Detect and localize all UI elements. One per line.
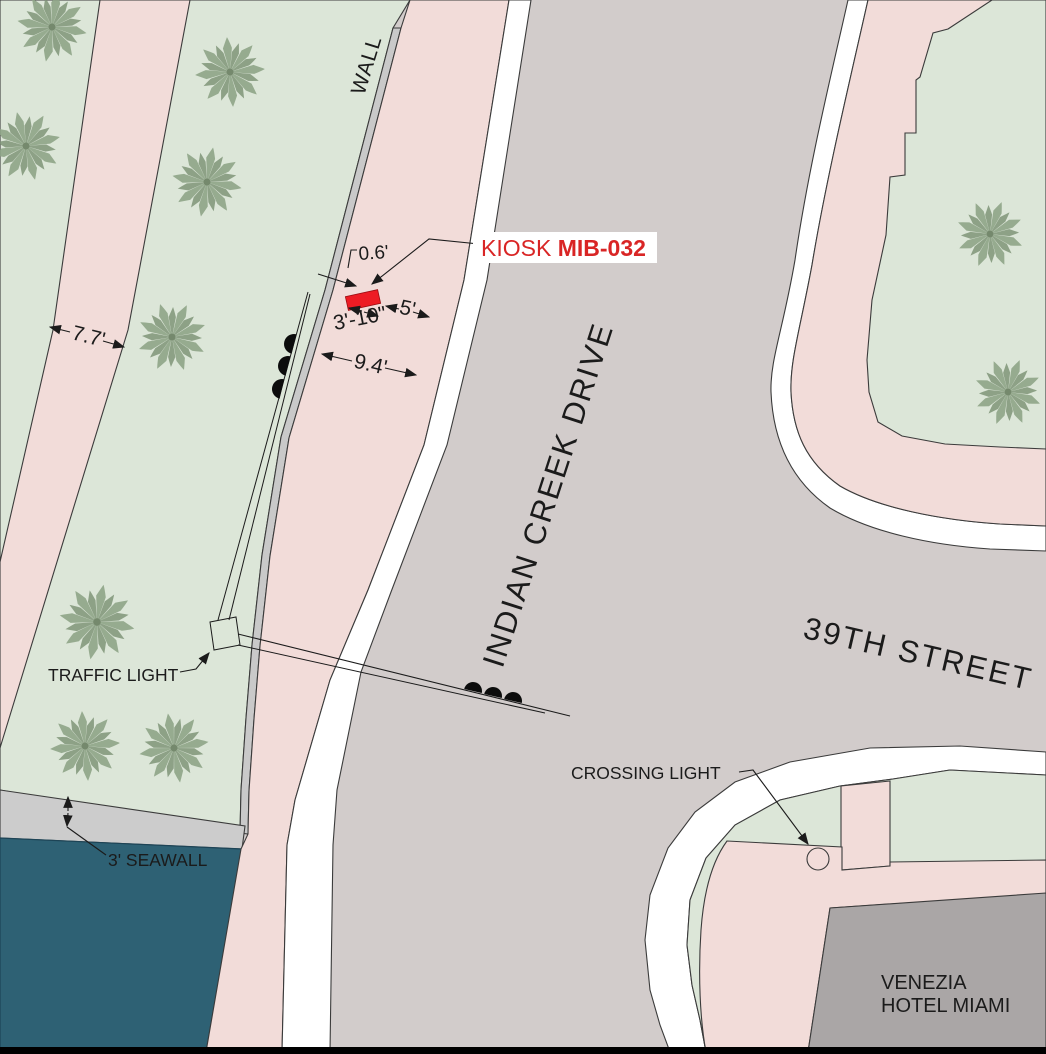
kiosk-label: KIOSK MIB-032: [481, 235, 646, 261]
water-area: [0, 838, 242, 1052]
site-plan-drawing: KIOSK MIB-032 WALL INDIAN CREEK DRIVE 39…: [0, 0, 1046, 1054]
crossing-light-symbol: [807, 848, 829, 870]
hotel-label-line2: HOTEL MIAMI: [881, 995, 1010, 1017]
drawing-border: [0, 1047, 1046, 1054]
seawall-label: 3' SEAWALL: [108, 850, 208, 870]
crossing-light-label: CROSSING LIGHT: [571, 763, 721, 783]
hotel-label-line1: VENEZIA: [881, 972, 967, 994]
corner-walkway-north: [841, 781, 890, 870]
traffic-light-label: TRAFFIC LIGHT: [48, 665, 179, 685]
dim-label-kiosk-to-wall: 0.6': [358, 242, 389, 265]
